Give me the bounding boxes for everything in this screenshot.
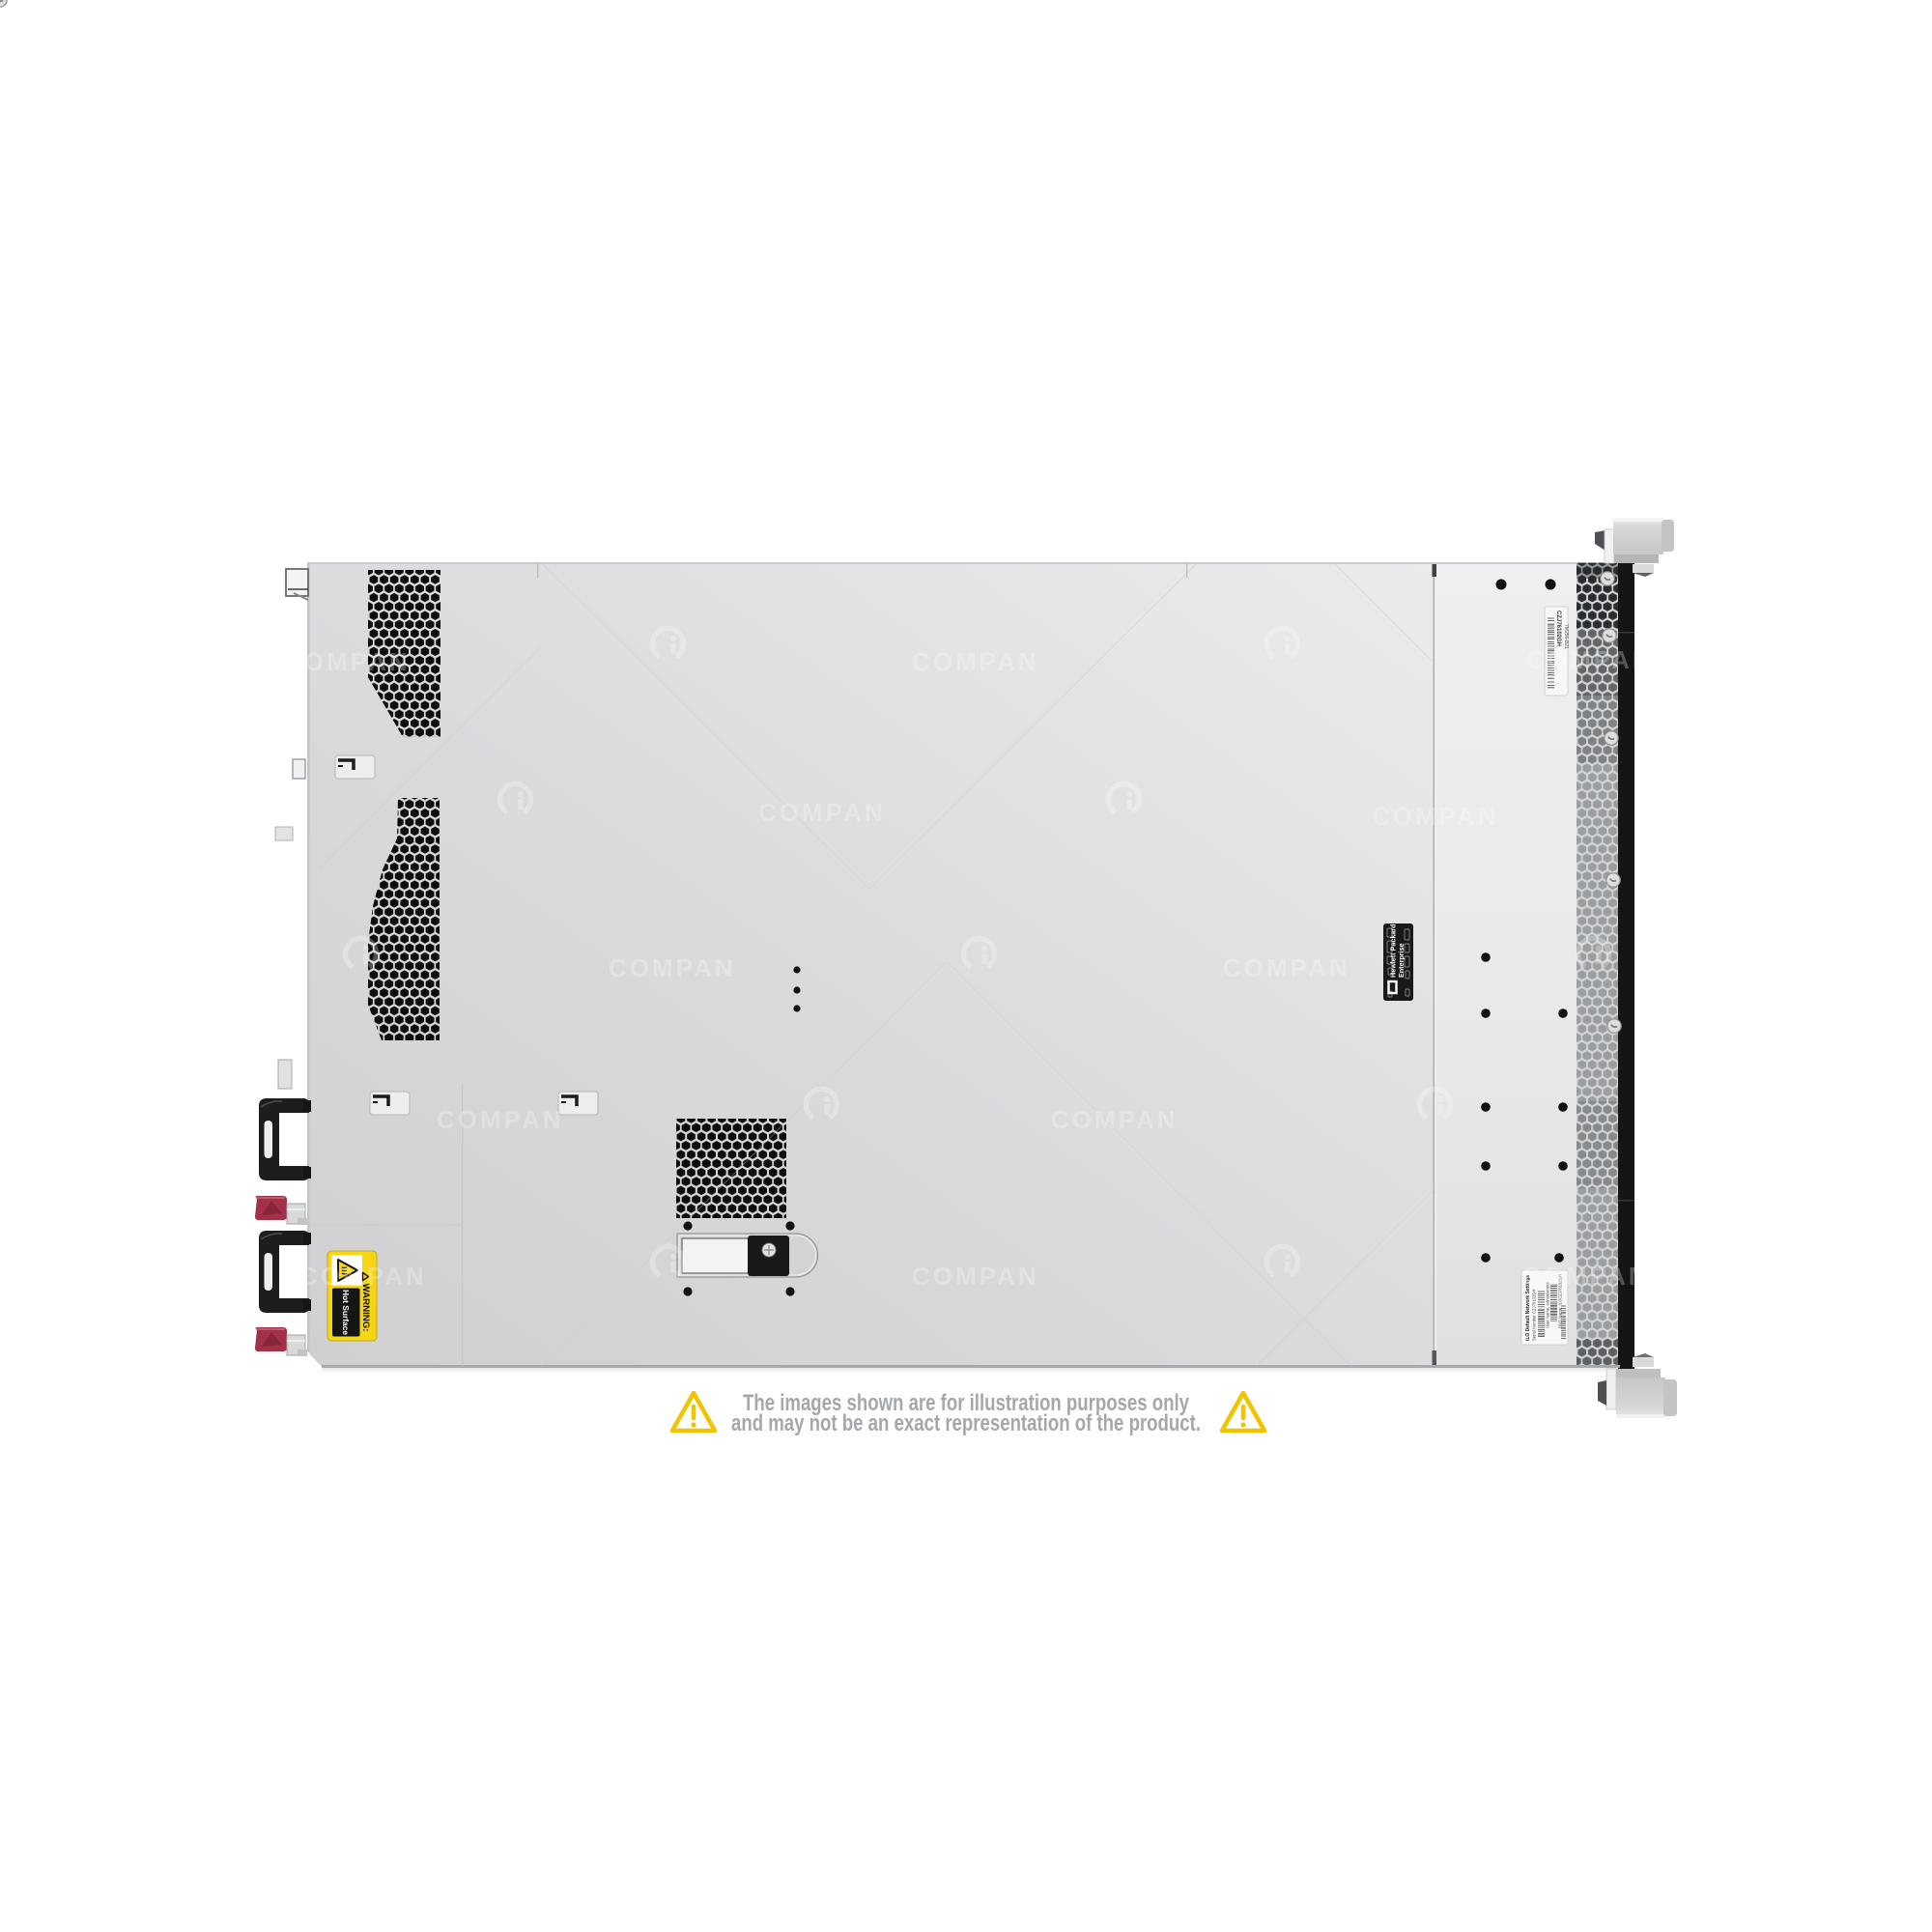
svg-text:Enterprise: Enterprise (1397, 943, 1406, 978)
svg-text:COMPAN: COMPAN (912, 647, 1039, 676)
svg-text:WARNING:: WARNING: (360, 1284, 371, 1332)
svg-text:Serial Number CZJ76102GH: Serial Number CZJ76102GH (1532, 1289, 1537, 1341)
svg-text:COMPAN: COMPAN (609, 953, 736, 982)
svg-text:COMPAN: COMPAN (758, 798, 886, 827)
svg-text:CZJ76102GH: CZJ76102GH (1555, 611, 1561, 646)
svg-text:COMPAN: COMPAN (1372, 802, 1499, 831)
svg-text:COMPAN: COMPAN (1051, 1105, 1179, 1134)
svg-text:COMPAN: COMPAN (437, 1105, 564, 1134)
svg-text:and may not be an exact repres: and may not be an exact representation o… (731, 1410, 1201, 1436)
svg-text:COMPAN: COMPAN (283, 647, 411, 676)
svg-text:COMPAN: COMPAN (912, 1262, 1039, 1291)
svg-text:COMPAN: COMPAN (1223, 953, 1350, 982)
svg-text:COMPAN: COMPAN (1526, 645, 1654, 674)
svg-text:Hot Surface: Hot Surface (341, 1290, 351, 1335)
svg-text:COMPAN: COMPAN (299, 1262, 427, 1291)
svg-text:COMPAN: COMPAN (1522, 1262, 1650, 1291)
